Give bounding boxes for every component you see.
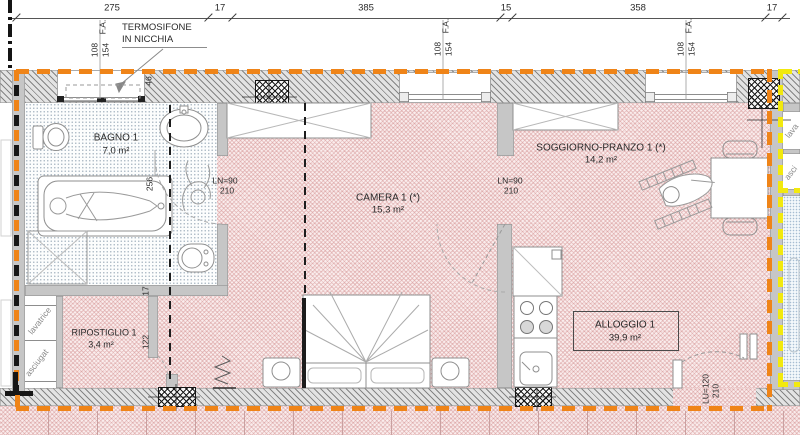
dim-17b: 17 (767, 3, 778, 14)
fa-width: 108 (676, 42, 687, 56)
boundary-orange-black-left (14, 70, 19, 392)
bidet (178, 244, 214, 272)
fa-height: 154 (101, 43, 112, 57)
dimension-line (10, 18, 790, 19)
nightstand (263, 358, 300, 387)
radiator-camera (213, 356, 236, 388)
vdim-122: 122 (141, 335, 152, 349)
kitchen-stove (514, 296, 557, 338)
bagno2-fixture (789, 258, 799, 352)
kitchen-sink (514, 338, 557, 387)
room-soggiorno-name: SOGGIORNO-PRANZO 1 (*) (536, 143, 665, 154)
room-camera-area: 15,3 m² (372, 205, 404, 216)
boundary-orange-corner (15, 395, 20, 407)
boundary-black-elbow (13, 372, 18, 392)
fa-width: 108 (433, 42, 444, 56)
dim-275: 275 (104, 3, 120, 14)
shower-tray (28, 231, 87, 284)
fa-height: 154 (444, 42, 455, 56)
wheelchair-person (639, 156, 723, 230)
wardrobe-camera (227, 103, 371, 138)
bed-partition (302, 298, 306, 388)
radiator-dashed (66, 85, 140, 98)
entry-door (673, 334, 757, 388)
boundary-orange-top (16, 69, 772, 74)
demarcation-dashed-bagno (169, 105, 171, 385)
dim-385: 385 (358, 3, 374, 14)
dim-358: 358 (630, 3, 646, 14)
alloggio-box (573, 311, 679, 351)
chair (723, 141, 757, 158)
termosifone-line2: IN NICCHIA (122, 34, 192, 46)
toilet (33, 124, 69, 151)
fa-code: F.A. (98, 20, 109, 35)
soggiorno-door-leaf (472, 224, 505, 283)
ripostiglio-door-arc (158, 356, 168, 378)
room-bagno-area: 7,0 m² (103, 146, 130, 157)
room-soggiorno-area: 14,2 m² (585, 155, 617, 166)
dining-table (711, 158, 768, 218)
person-at-sink (183, 161, 211, 211)
boundary-orange-right (767, 69, 772, 411)
neighbor-outline (1, 140, 11, 386)
boundary-orange-bottom (16, 406, 767, 411)
boundary-yellow-right (778, 69, 783, 383)
room-camera-name: CAMERA 1 (*) (356, 193, 420, 204)
washbasin (160, 106, 208, 147)
fa-code: F.A. (441, 19, 452, 34)
nightstand (432, 358, 469, 387)
floor-plan: 275 17 385 15 358 17 108 154 F.A. 108 15… (0, 0, 800, 435)
room-ripostiglio-name: RIPOSTIGLIO 1 (71, 328, 136, 339)
alloggio-area: 39,9 m² (609, 333, 641, 344)
entry-door-height: 210 (711, 384, 722, 398)
fa-height: 154 (687, 42, 698, 56)
chair (723, 218, 757, 235)
property-dashdot-line (8, 0, 12, 70)
boundary-yellow-top (782, 69, 800, 74)
soggiorno-door-height: 210 (504, 186, 518, 197)
demarcation-dashed-camera (304, 103, 306, 298)
vdim-17: 17 (141, 286, 152, 295)
boundary-yellow-mid (778, 188, 800, 193)
wardrobe-soggiorno (513, 103, 618, 130)
dim-17a: 17 (215, 3, 226, 14)
bagno-door-height: 210 (220, 186, 234, 197)
boundary-yellow-bottom (778, 382, 800, 387)
room-bagno-name: BAGNO 1 (94, 133, 138, 144)
alloggio-name: ALLOGGIO 1 (595, 320, 655, 331)
kitchen-counter (513, 247, 562, 296)
fixtures-drawing (0, 0, 800, 435)
fa-width: 108 (90, 43, 101, 57)
note-underline (122, 47, 207, 48)
vdim-bagno: 256 (145, 177, 156, 191)
bed (303, 292, 430, 388)
termosifone-line1: TERMOSIFONE (122, 22, 192, 34)
soggiorno-door-arc (437, 224, 505, 292)
fa-code: F.A. (684, 19, 695, 34)
room-ripostiglio-area: 3,4 m² (88, 340, 114, 351)
termosifone-note: TERMOSIFONE IN NICCHIA (122, 22, 192, 46)
dim-15: 15 (501, 3, 512, 14)
vdim-niche: 46 (144, 76, 155, 85)
